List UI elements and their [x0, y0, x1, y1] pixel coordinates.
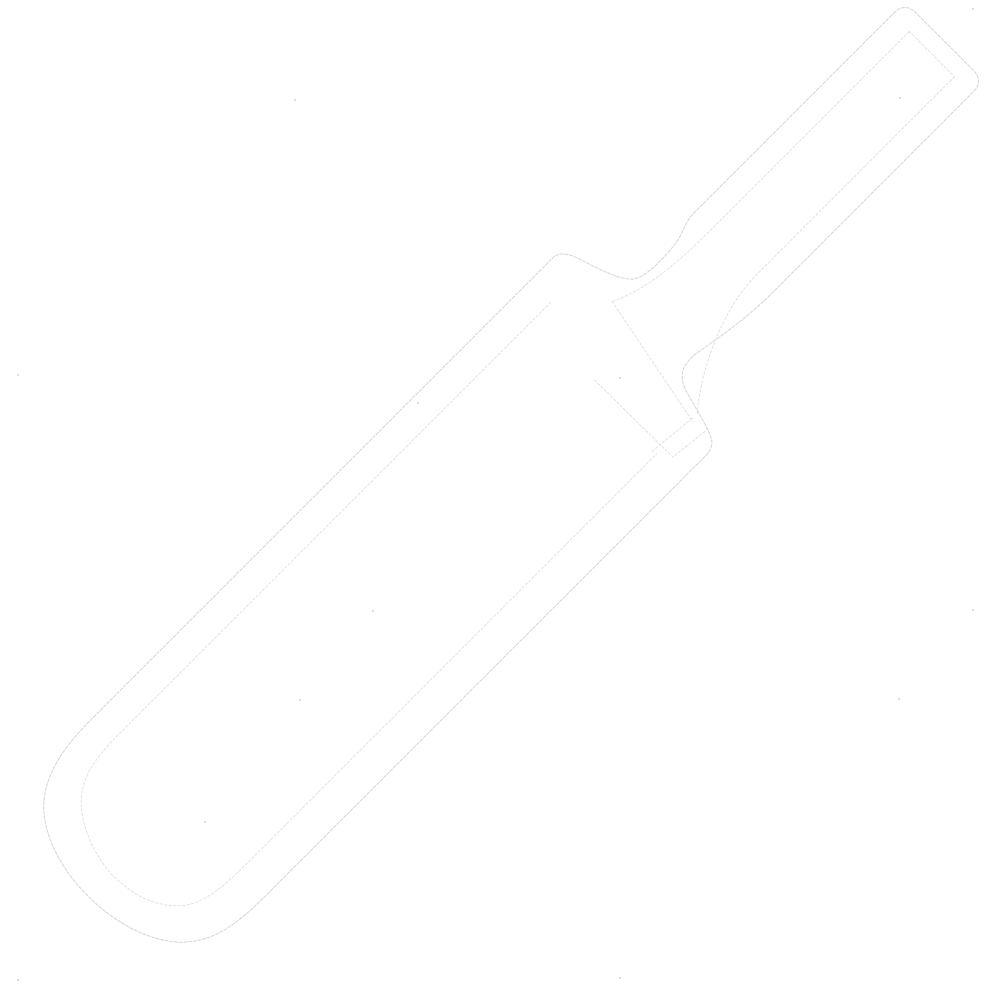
artifact-dot	[417, 402, 419, 404]
artifact-dot	[619, 377, 621, 379]
splice-lines	[557, 302, 724, 469]
artifact-dot	[299, 699, 301, 701]
artifact-dot	[294, 99, 296, 101]
artifact-dot	[372, 610, 374, 612]
blade-inner-outline	[45, 302, 679, 936]
cricket-bat-illustration	[0, 0, 1008, 987]
artifact-dot	[972, 609, 974, 611]
artifact-dot	[17, 374, 19, 376]
handle-inner-outline	[599, 18, 994, 413]
artifact-dot	[204, 821, 206, 823]
canvas	[0, 0, 1008, 987]
artifact-dot	[619, 977, 621, 979]
bat-outer-outline	[1, 0, 1008, 985]
artifact-dot	[899, 97, 901, 99]
artifact-dot	[17, 979, 19, 981]
cricket-bat-group	[1, 0, 1008, 985]
noise-specks	[17, 8, 974, 981]
artifact-dot	[898, 698, 900, 700]
artifact-dot	[972, 8, 974, 10]
